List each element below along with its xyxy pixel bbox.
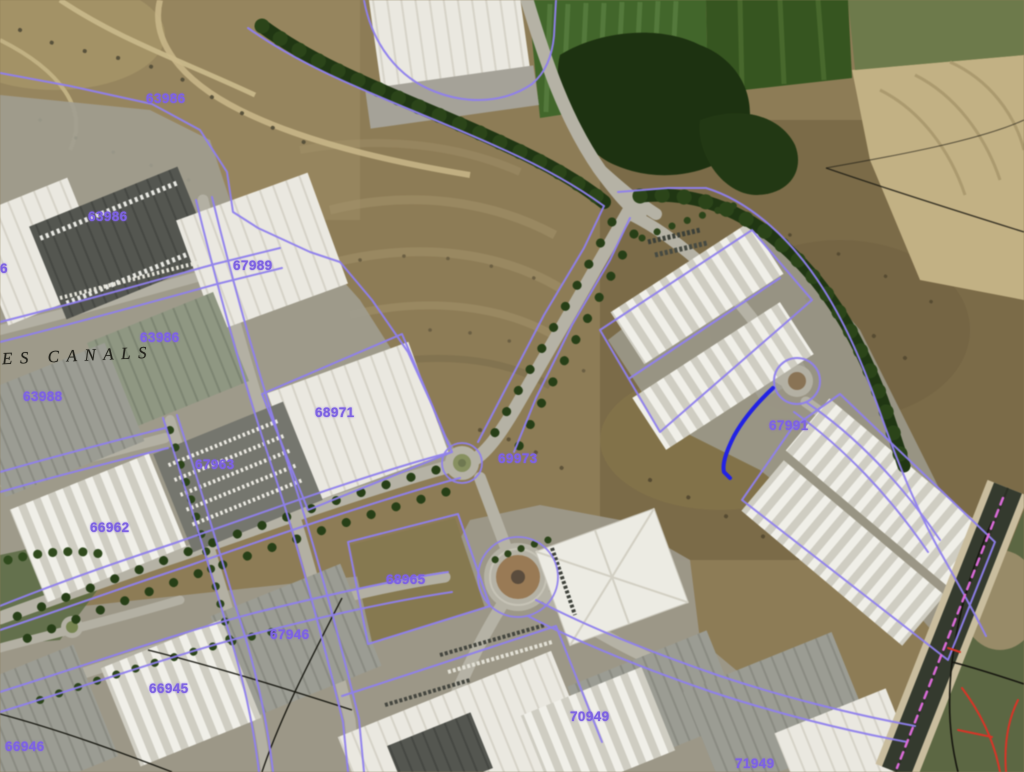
satellite-canvas bbox=[0, 0, 1024, 772]
map-viewport[interactable]: ES CANALS 639866639866798963986639886897… bbox=[0, 0, 1024, 772]
